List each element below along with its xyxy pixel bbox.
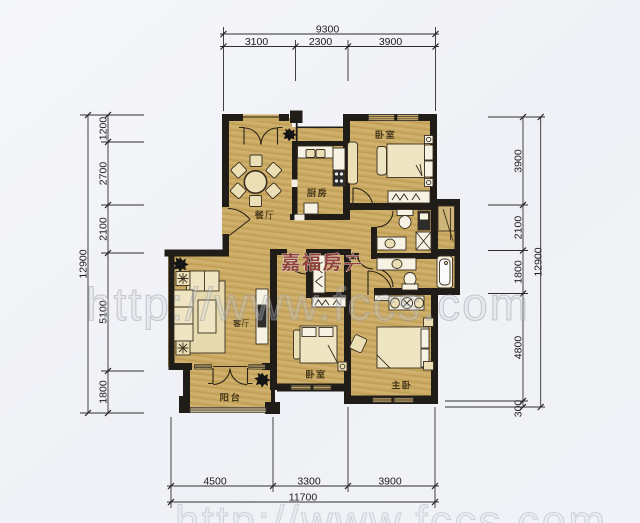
svg-text:3100: 3100 bbox=[245, 36, 269, 48]
svg-text:2100: 2100 bbox=[98, 217, 110, 241]
svg-text:12900: 12900 bbox=[533, 247, 545, 276]
svg-text:2100: 2100 bbox=[513, 216, 525, 240]
svg-text:300: 300 bbox=[513, 400, 525, 418]
svg-text:3900: 3900 bbox=[378, 476, 402, 488]
svg-text:4800: 4800 bbox=[513, 336, 525, 360]
svg-text:3900: 3900 bbox=[379, 36, 403, 48]
svg-text:9300: 9300 bbox=[316, 24, 340, 36]
svg-text:2700: 2700 bbox=[98, 162, 110, 186]
svg-text:1800: 1800 bbox=[98, 380, 110, 404]
svg-text:3900: 3900 bbox=[513, 149, 525, 173]
svg-text:2300: 2300 bbox=[309, 36, 333, 48]
svg-text:3300: 3300 bbox=[297, 476, 321, 488]
svg-text:http://www.fccs.com: http://www.fccs.com bbox=[86, 278, 528, 330]
svg-text:12900: 12900 bbox=[78, 249, 90, 278]
svg-text:1200: 1200 bbox=[98, 117, 110, 141]
svg-text:4500: 4500 bbox=[203, 476, 227, 488]
